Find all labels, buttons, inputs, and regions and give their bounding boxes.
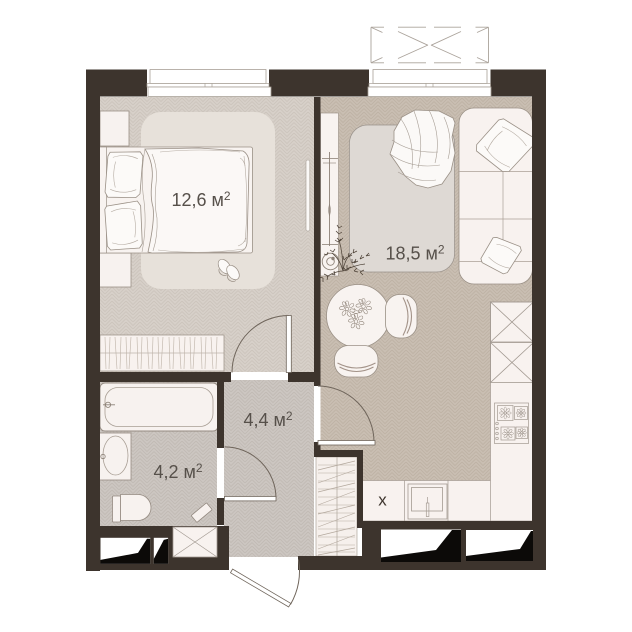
svg-text:4,2 м2: 4,2 м2 (153, 461, 202, 482)
svg-text:4,4 м2: 4,4 м2 (243, 409, 292, 430)
svg-text:12,6 м2: 12,6 м2 (171, 189, 230, 210)
svg-text:x: x (378, 491, 387, 510)
svg-text:18,5 м2: 18,5 м2 (385, 243, 444, 264)
